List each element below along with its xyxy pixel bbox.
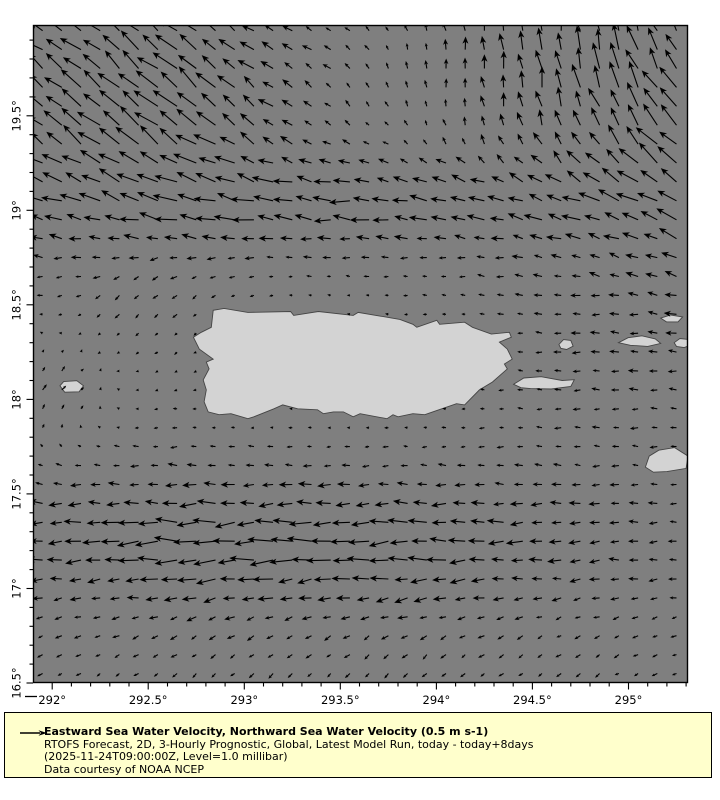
y-tick-label: 19° xyxy=(10,200,24,220)
x-tick-label: 293° xyxy=(230,693,258,707)
y-tick-label: 18° xyxy=(10,389,24,409)
legend-credit: Data courtesy of NOAA NCEP xyxy=(44,764,705,777)
island-puerto_rico xyxy=(193,308,512,418)
y-tick-label: 17.5° xyxy=(10,478,24,509)
y-tick-label: 16.5° xyxy=(10,667,24,698)
x-tick-label: 293.5° xyxy=(321,693,360,707)
y-tick-label: 19.5° xyxy=(10,100,24,131)
x-tick-label: 292.5° xyxy=(129,693,168,707)
x-tick-label: 295° xyxy=(615,693,643,707)
quiver-map: 292°292.5°293°293.5°294°294.5°295°16.5°1… xyxy=(0,0,720,712)
x-tick-label: 294.5° xyxy=(513,693,552,707)
sea-water-velocity-figure: 292°292.5°293°293.5°294°294.5°295°16.5°1… xyxy=(0,0,720,800)
x-tick-label: 292° xyxy=(38,693,66,707)
y-tick-label: 17° xyxy=(10,578,24,598)
legend-title: Eastward Sea Water Velocity, Northward S… xyxy=(44,726,705,739)
legend-run-info: (2025-11-24T09:00:00Z, Level=1.0 milliba… xyxy=(44,751,705,764)
legend-box: Eastward Sea Water Velocity, Northward S… xyxy=(4,712,712,778)
legend-text-block: Eastward Sea Water Velocity, Northward S… xyxy=(44,726,705,776)
x-tick-label: 294° xyxy=(423,693,451,707)
y-tick-label: 18.5° xyxy=(10,289,24,320)
